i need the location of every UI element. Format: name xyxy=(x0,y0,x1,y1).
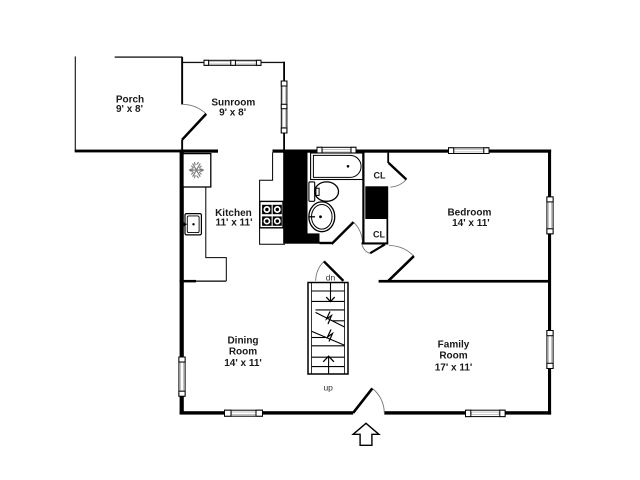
svg-text:Family: Family xyxy=(438,340,470,351)
svg-text:9' x 8': 9' x 8' xyxy=(219,107,246,118)
svg-text:CL: CL xyxy=(374,170,386,180)
svg-text:Dining: Dining xyxy=(227,336,258,347)
svg-text:dn: dn xyxy=(326,273,336,283)
svg-text:Room: Room xyxy=(229,347,257,358)
svg-text:14' x 11': 14' x 11' xyxy=(224,358,262,369)
svg-text:up: up xyxy=(323,383,333,393)
svg-text:Bedroom: Bedroom xyxy=(447,208,491,219)
svg-text:17' x 11': 17' x 11' xyxy=(435,363,473,374)
svg-text:Room: Room xyxy=(439,351,467,362)
svg-text:14' x 11': 14' x 11' xyxy=(452,218,490,229)
svg-text:CL: CL xyxy=(373,230,385,240)
svg-text:9' x 8': 9' x 8' xyxy=(116,104,143,115)
svg-text:11' x 11': 11' x 11' xyxy=(215,218,252,229)
